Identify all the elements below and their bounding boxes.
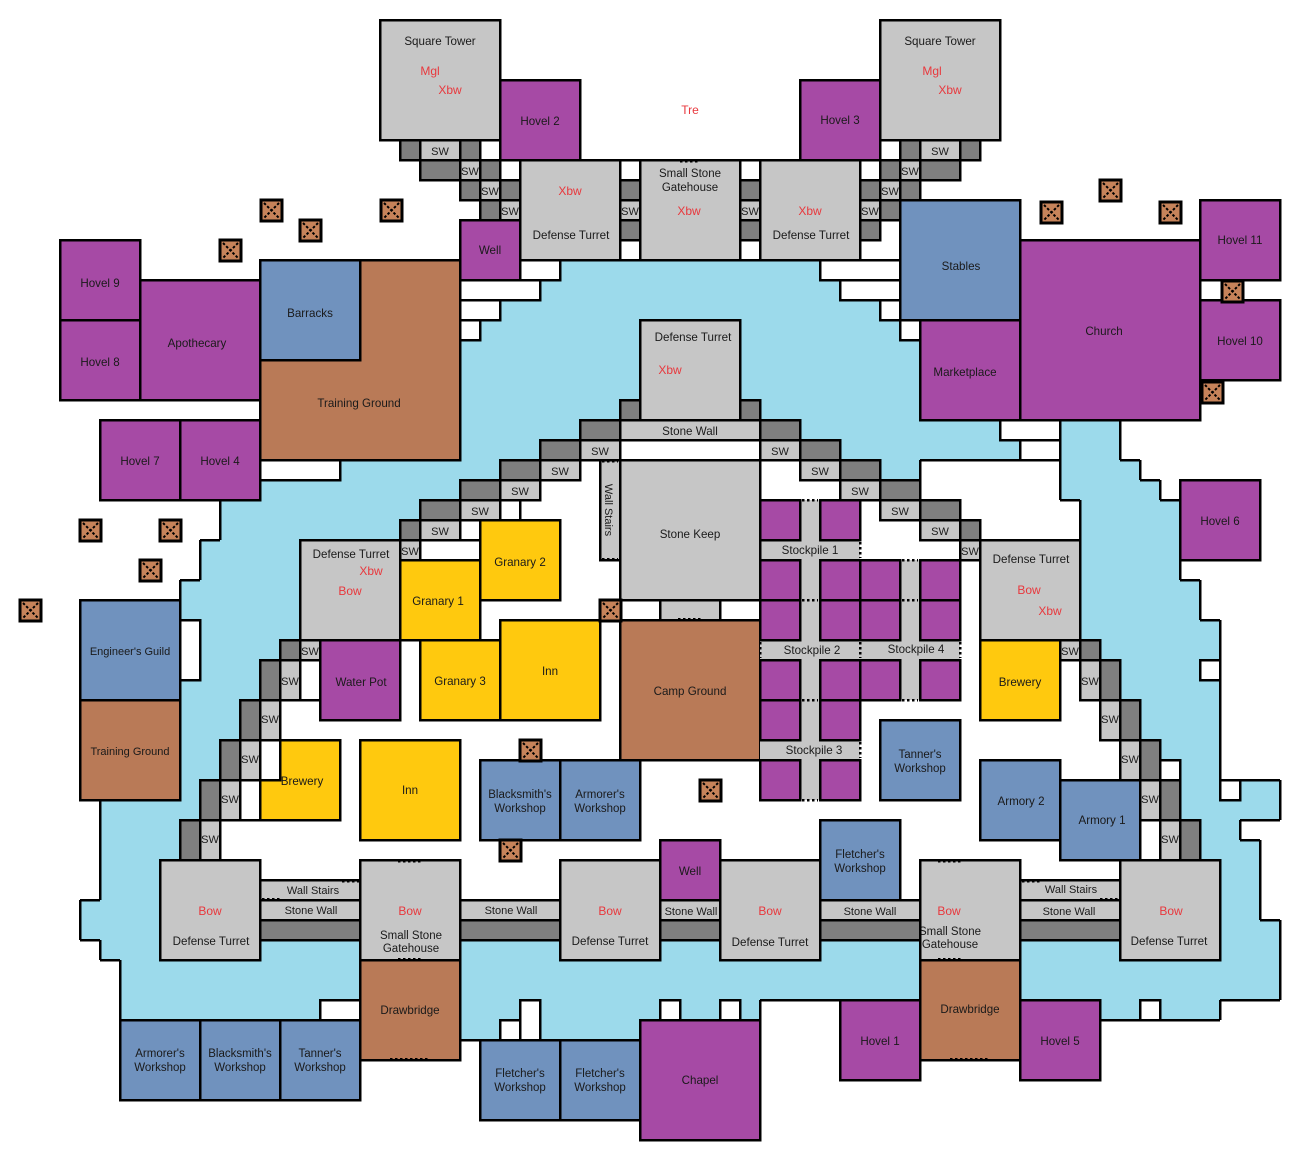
svg-text:Gatehouse: Gatehouse: [922, 939, 978, 951]
svg-text:Apothecary: Apothecary: [168, 337, 227, 350]
svg-text:SW: SW: [431, 526, 449, 538]
svg-text:Small Stone: Small Stone: [659, 168, 721, 180]
svg-text:Armory 2: Armory 2: [997, 795, 1044, 808]
svg-text:Fletcher's: Fletcher's: [495, 1068, 545, 1080]
svg-text:Chapel: Chapel: [682, 1074, 719, 1087]
svg-text:SW: SW: [931, 526, 949, 538]
svg-text:SW: SW: [1101, 714, 1119, 726]
svg-text:SW: SW: [201, 834, 219, 846]
svg-text:Workshop: Workshop: [494, 1082, 546, 1094]
svg-text:Armorer's: Armorer's: [135, 1048, 185, 1060]
svg-text:SW: SW: [261, 714, 279, 726]
svg-text:SW: SW: [901, 166, 919, 178]
svg-text:Gatehouse: Gatehouse: [383, 943, 439, 955]
svg-text:Defense Turret: Defense Turret: [533, 229, 610, 242]
svg-text:Workshop: Workshop: [574, 1082, 626, 1094]
svg-text:Defense Turret: Defense Turret: [572, 935, 649, 948]
svg-text:Stone Wall: Stone Wall: [665, 906, 718, 918]
svg-text:Fletcher's: Fletcher's: [835, 849, 885, 861]
svg-text:Xbw: Xbw: [677, 204, 701, 218]
svg-text:Xbw: Xbw: [438, 83, 462, 97]
svg-text:Drawbridge: Drawbridge: [940, 1003, 999, 1016]
svg-text:Blacksmith's: Blacksmith's: [208, 1048, 272, 1060]
svg-text:Tanner's: Tanner's: [298, 1048, 341, 1060]
svg-text:SW: SW: [1141, 794, 1159, 806]
svg-text:Wall Stairs: Wall Stairs: [1045, 884, 1098, 896]
svg-text:Square Tower: Square Tower: [904, 35, 975, 48]
svg-text:Xbw: Xbw: [938, 83, 962, 97]
svg-text:Gatehouse: Gatehouse: [662, 182, 718, 194]
svg-text:Drawbridge: Drawbridge: [380, 1004, 439, 1017]
svg-text:SW: SW: [401, 546, 419, 558]
svg-text:SW: SW: [221, 794, 239, 806]
svg-text:SW: SW: [1161, 834, 1179, 846]
svg-text:Stone Wall: Stone Wall: [1043, 906, 1096, 918]
svg-text:Barracks: Barracks: [287, 307, 333, 320]
svg-text:Hovel 4: Hovel 4: [200, 455, 240, 468]
svg-text:Hovel 7: Hovel 7: [120, 455, 159, 468]
svg-text:Stables: Stables: [942, 260, 981, 273]
svg-text:Bow: Bow: [398, 904, 422, 918]
svg-text:Xbw: Xbw: [798, 204, 822, 218]
svg-text:Hovel 10: Hovel 10: [1217, 335, 1263, 348]
svg-text:Brewery: Brewery: [281, 775, 324, 788]
svg-text:Workshop: Workshop: [894, 763, 946, 775]
svg-text:Wall Stairs: Wall Stairs: [602, 484, 614, 537]
svg-text:Brewery: Brewery: [999, 676, 1042, 689]
svg-text:Granary 3: Granary 3: [434, 675, 486, 688]
svg-text:Inn: Inn: [402, 784, 418, 797]
svg-text:SW: SW: [961, 546, 979, 558]
svg-text:Engineer's Guild: Engineer's Guild: [90, 646, 170, 658]
svg-text:SW: SW: [241, 754, 259, 766]
svg-text:Workshop: Workshop: [134, 1062, 186, 1074]
svg-text:Workshop: Workshop: [574, 803, 626, 815]
svg-text:SW: SW: [881, 186, 899, 198]
svg-text:SW: SW: [461, 166, 479, 178]
svg-text:SW: SW: [891, 506, 909, 518]
svg-text:Stockpile 4: Stockpile 4: [888, 643, 945, 656]
svg-text:Bow: Bow: [598, 904, 622, 918]
svg-text:Armory 1: Armory 1: [1078, 814, 1125, 827]
svg-text:Defense Turret: Defense Turret: [313, 548, 390, 561]
svg-text:Hovel 6: Hovel 6: [1200, 515, 1239, 528]
svg-text:Defense Turret: Defense Turret: [655, 331, 732, 344]
svg-text:Inn: Inn: [542, 665, 558, 678]
svg-text:SW: SW: [1061, 646, 1079, 658]
svg-text:Wall Stairs: Wall Stairs: [287, 885, 340, 897]
svg-text:SW: SW: [1081, 676, 1099, 688]
svg-text:Defense Turret: Defense Turret: [173, 935, 250, 948]
svg-text:Xbw: Xbw: [1038, 604, 1062, 618]
svg-text:Hovel 1: Hovel 1: [860, 1035, 899, 1048]
svg-text:SW: SW: [851, 486, 869, 498]
svg-text:Training Ground: Training Ground: [317, 397, 400, 410]
svg-text:Bow: Bow: [338, 584, 362, 598]
svg-text:Granary 1: Granary 1: [412, 595, 464, 608]
svg-text:SW: SW: [431, 146, 449, 158]
svg-text:Stone Wall: Stone Wall: [485, 905, 538, 917]
svg-text:SW: SW: [771, 446, 789, 458]
svg-text:Workshop: Workshop: [494, 803, 546, 815]
svg-text:SW: SW: [301, 646, 319, 658]
svg-text:SW: SW: [1121, 754, 1139, 766]
svg-text:Xbw: Xbw: [658, 363, 682, 377]
svg-text:Granary 2: Granary 2: [494, 556, 546, 569]
svg-text:Xbw: Xbw: [558, 184, 582, 198]
svg-text:Hovel 2: Hovel 2: [520, 115, 559, 128]
svg-text:Square Tower: Square Tower: [404, 35, 475, 48]
svg-text:Well: Well: [479, 244, 501, 257]
svg-text:Mgl: Mgl: [922, 64, 941, 78]
svg-text:Tre: Tre: [681, 103, 699, 117]
svg-text:SW: SW: [591, 446, 609, 458]
svg-text:Stockpile 3: Stockpile 3: [786, 744, 843, 757]
svg-text:Workshop: Workshop: [294, 1062, 346, 1074]
svg-text:Well: Well: [679, 865, 701, 878]
svg-text:SW: SW: [481, 186, 499, 198]
svg-text:Bow: Bow: [758, 904, 782, 918]
svg-text:Bow: Bow: [1017, 583, 1041, 597]
svg-text:SW: SW: [931, 146, 949, 158]
svg-text:Hovel 3: Hovel 3: [820, 114, 859, 127]
svg-text:Camp Ground: Camp Ground: [654, 685, 727, 698]
svg-text:SW: SW: [861, 206, 879, 218]
svg-text:SW: SW: [811, 466, 829, 478]
svg-text:SW: SW: [741, 206, 759, 218]
svg-text:Hovel 5: Hovel 5: [1040, 1035, 1079, 1048]
svg-text:Defense Turret: Defense Turret: [732, 936, 809, 949]
svg-text:Hovel 8: Hovel 8: [80, 356, 119, 369]
svg-text:Stockpile 2: Stockpile 2: [784, 644, 841, 657]
svg-text:Stockpile 1: Stockpile 1: [782, 544, 839, 557]
svg-text:Church: Church: [1085, 325, 1122, 338]
svg-text:SW: SW: [471, 506, 489, 518]
svg-text:Training Ground: Training Ground: [90, 746, 169, 758]
svg-text:Blacksmith's: Blacksmith's: [488, 789, 552, 801]
svg-text:Small Stone: Small Stone: [919, 926, 981, 938]
svg-text:Stone Wall: Stone Wall: [662, 425, 718, 438]
svg-text:SW: SW: [501, 206, 519, 218]
svg-text:SW: SW: [511, 486, 529, 498]
svg-text:Bow: Bow: [198, 904, 222, 918]
svg-text:Xbw: Xbw: [359, 564, 383, 578]
svg-text:Marketplace: Marketplace: [933, 366, 996, 379]
svg-text:Stone Wall: Stone Wall: [844, 906, 897, 918]
svg-text:Fletcher's: Fletcher's: [575, 1068, 625, 1080]
svg-text:Bow: Bow: [937, 904, 961, 918]
svg-text:Stone Wall: Stone Wall: [285, 905, 338, 917]
svg-text:SW: SW: [551, 466, 569, 478]
svg-text:Defense Turret: Defense Turret: [773, 229, 850, 242]
svg-text:Tanner's: Tanner's: [898, 749, 941, 761]
svg-text:Bow: Bow: [1159, 904, 1183, 918]
svg-text:Stone Keep: Stone Keep: [660, 528, 721, 541]
svg-text:SW: SW: [281, 676, 299, 688]
svg-text:Defense Turret: Defense Turret: [993, 553, 1070, 566]
svg-text:Armorer's: Armorer's: [575, 789, 625, 801]
svg-text:Water Pot: Water Pot: [335, 676, 387, 689]
svg-text:Mgl: Mgl: [420, 64, 439, 78]
svg-text:Hovel 9: Hovel 9: [80, 277, 119, 290]
svg-text:SW: SW: [621, 206, 639, 218]
svg-text:Workshop: Workshop: [214, 1062, 266, 1074]
svg-text:Hovel 11: Hovel 11: [1218, 234, 1263, 247]
svg-text:Small Stone: Small Stone: [380, 930, 442, 942]
svg-text:Defense Turret: Defense Turret: [1131, 935, 1208, 948]
svg-text:Workshop: Workshop: [834, 863, 886, 875]
